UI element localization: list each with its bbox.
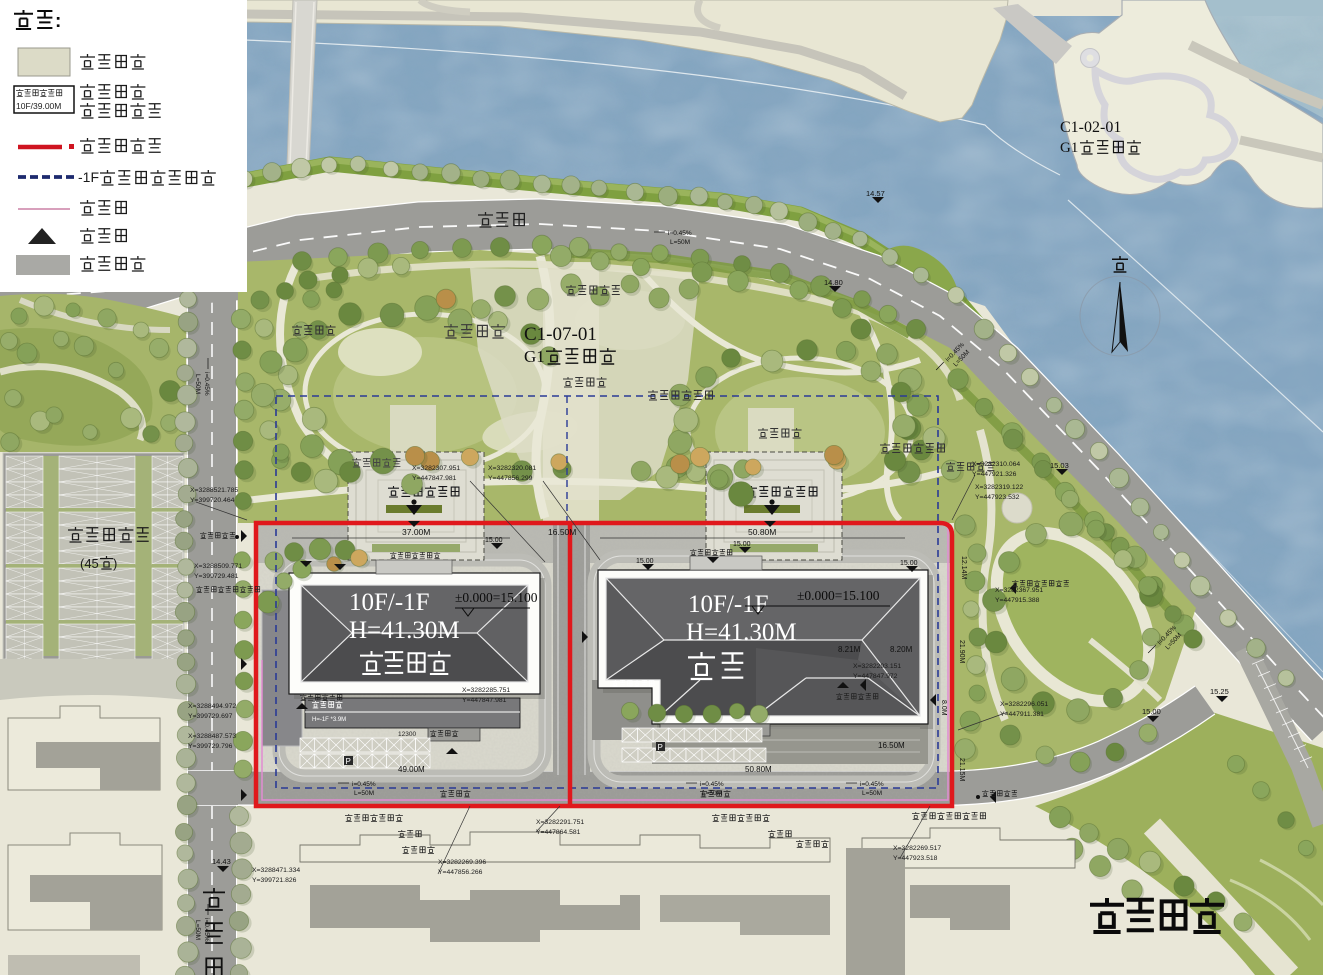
svg-text:Y=447847.972: Y=447847.972 [853, 673, 898, 680]
svg-text:X=3282285.751: X=3282285.751 [462, 687, 510, 694]
svg-text:X=3282296.051: X=3282296.051 [1000, 701, 1048, 708]
svg-text:50.80M: 50.80M [745, 765, 772, 774]
svg-text:Y=447915.388: Y=447915.388 [995, 597, 1040, 604]
svg-text:50.80M: 50.80M [748, 527, 776, 537]
svg-text:Y=399721.826: Y=399721.826 [252, 877, 297, 884]
svg-text:X=3288471.334: X=3288471.334 [252, 867, 300, 874]
svg-text:10F/39.00M: 10F/39.00M [16, 101, 61, 111]
svg-text:Y=447923.518: Y=447923.518 [893, 855, 938, 862]
svg-text:8.20M: 8.20M [890, 645, 913, 654]
svg-text:15.00: 15.00 [485, 537, 503, 544]
svg-text:X=3282319.122: X=3282319.122 [975, 484, 1023, 491]
svg-text:i=0.45%: i=0.45% [352, 781, 376, 788]
svg-text:L=50M: L=50M [194, 374, 201, 394]
svg-text:X=3282367.951: X=3282367.951 [995, 587, 1043, 594]
svg-text:±0.000=15.100: ±0.000=15.100 [797, 588, 880, 603]
svg-text:Y=399729.796: Y=399729.796 [188, 743, 233, 750]
svg-text:i=0.45%: i=0.45% [203, 372, 210, 396]
svg-text:-1F: -1F [78, 169, 99, 185]
svg-text:H=-1F *3.9M: H=-1F *3.9M [312, 717, 346, 723]
svg-text:±0.000=15.100: ±0.000=15.100 [455, 590, 538, 605]
svg-text:Y=447923.532: Y=447923.532 [975, 494, 1020, 501]
svg-text:8.21M: 8.21M [838, 645, 861, 654]
svg-text:Y=447856.266: Y=447856.266 [438, 869, 483, 876]
svg-text:P: P [658, 743, 663, 752]
svg-text:X=3282291.751: X=3282291.751 [536, 819, 584, 826]
svg-text:15.00: 15.00 [733, 541, 751, 548]
svg-text:L=50M: L=50M [862, 790, 882, 797]
svg-text:15.25: 15.25 [1210, 687, 1229, 696]
svg-text:8.0M: 8.0M [940, 700, 947, 716]
svg-text:L=50M: L=50M [354, 790, 374, 797]
svg-text:i=0.45%: i=0.45% [860, 781, 884, 788]
svg-text:14.43: 14.43 [212, 857, 231, 866]
svg-text:Y=447864.581: Y=447864.581 [536, 829, 581, 836]
svg-text:Y=399729.697: Y=399729.697 [188, 713, 233, 720]
svg-text:X=3282293.151: X=3282293.151 [853, 663, 901, 670]
svg-text:15.03: 15.03 [1050, 461, 1069, 470]
svg-text:): ) [113, 556, 117, 571]
svg-text:X=3282320.081: X=3282320.081 [488, 465, 536, 472]
svg-text::: : [55, 11, 61, 32]
svg-text:12300: 12300 [398, 731, 416, 738]
svg-text:16.50M: 16.50M [878, 741, 905, 750]
svg-text:X=3288494.972: X=3288494.972 [188, 703, 236, 710]
svg-text:16.50M: 16.50M [548, 527, 576, 537]
svg-text:P: P [346, 757, 351, 766]
svg-text:14.57: 14.57 [866, 189, 885, 198]
svg-text:H=41.30M: H=41.30M [349, 617, 460, 644]
svg-text:15.00: 15.00 [636, 558, 654, 565]
svg-text:X=3288487.573: X=3288487.573 [188, 733, 236, 740]
svg-text:G1: G1 [1060, 140, 1078, 156]
svg-text:X=3282269.517: X=3282269.517 [893, 845, 941, 852]
svg-text:Y=447847.981: Y=447847.981 [412, 475, 457, 482]
svg-text:12.14M: 12.14M [960, 556, 967, 580]
svg-text:Y=447847.981: Y=447847.981 [462, 697, 507, 704]
svg-text:Y=447856.299: Y=447856.299 [488, 475, 533, 482]
svg-text:X=3288521.785: X=3288521.785 [190, 487, 238, 494]
svg-text:14.80: 14.80 [824, 278, 843, 287]
svg-text:i=0.45%: i=0.45% [700, 781, 724, 788]
svg-text:L=50M: L=50M [194, 920, 201, 940]
svg-text:Y=447921.326: Y=447921.326 [972, 471, 1017, 478]
svg-text:21.15M: 21.15M [958, 758, 965, 782]
svg-text:i=0.45%: i=0.45% [203, 918, 210, 942]
svg-text:15.00: 15.00 [900, 560, 918, 567]
svg-text:X=3288509.771: X=3288509.771 [194, 563, 242, 570]
svg-text:C1-02-01: C1-02-01 [1060, 119, 1121, 136]
svg-text:37.00M: 37.00M [402, 527, 430, 537]
svg-text:10F/-1F: 10F/-1F [688, 591, 769, 618]
svg-text:Y=399720.464: Y=399720.464 [190, 497, 235, 504]
svg-text:H=41.30M: H=41.30M [686, 619, 797, 646]
svg-text:G1: G1 [524, 347, 545, 366]
svg-text:X=3282269.396: X=3282269.396 [438, 859, 486, 866]
svg-text:C1-07-01: C1-07-01 [524, 324, 597, 345]
svg-text:Y=399729.481: Y=399729.481 [194, 573, 239, 580]
svg-text:Y=447911.381: Y=447911.381 [1000, 711, 1044, 718]
svg-text:21.90M: 21.90M [958, 640, 965, 664]
svg-text:X=3282307.951: X=3282307.951 [412, 465, 460, 472]
svg-text:L=50M: L=50M [670, 239, 690, 246]
svg-text:(45: (45 [80, 556, 99, 571]
svg-text:49.00M: 49.00M [398, 765, 425, 774]
svg-text:i=0.45%: i=0.45% [668, 230, 692, 237]
svg-text:15.00: 15.00 [1142, 707, 1161, 716]
svg-text:10F/-1F: 10F/-1F [349, 589, 430, 616]
